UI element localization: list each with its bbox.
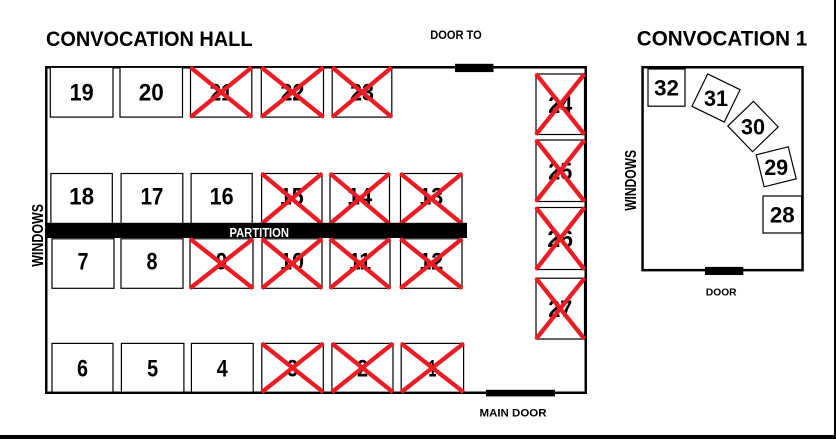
svg-text:31: 31: [704, 86, 728, 111]
svg-text:16: 16: [210, 184, 234, 211]
svg-text:PARTITION: PARTITION: [229, 226, 289, 240]
svg-text:19: 19: [70, 80, 94, 107]
svg-text:WINDOWS: WINDOWS: [623, 150, 640, 211]
svg-text:DOOR: DOOR: [706, 287, 737, 299]
svg-text:18: 18: [69, 184, 94, 211]
svg-text:32: 32: [654, 76, 679, 101]
svg-text:30: 30: [741, 114, 765, 139]
svg-text:7: 7: [78, 249, 89, 276]
svg-text:CONVOCATION HALL: CONVOCATION HALL: [46, 26, 253, 51]
svg-text:8: 8: [147, 249, 158, 276]
svg-text:WINDOWS: WINDOWS: [30, 204, 47, 267]
svg-text:DOOR TO: DOOR TO: [430, 29, 482, 42]
svg-text:CONVOCATION 1: CONVOCATION 1: [637, 25, 808, 50]
svg-text:6: 6: [77, 355, 88, 382]
svg-text:17: 17: [140, 184, 163, 211]
svg-text:5: 5: [147, 355, 158, 382]
svg-text:4: 4: [217, 355, 229, 382]
svg-text:29: 29: [764, 155, 788, 180]
svg-text:20: 20: [139, 80, 164, 107]
svg-text:28: 28: [770, 202, 795, 227]
svg-text:MAIN DOOR: MAIN DOOR: [480, 408, 547, 420]
